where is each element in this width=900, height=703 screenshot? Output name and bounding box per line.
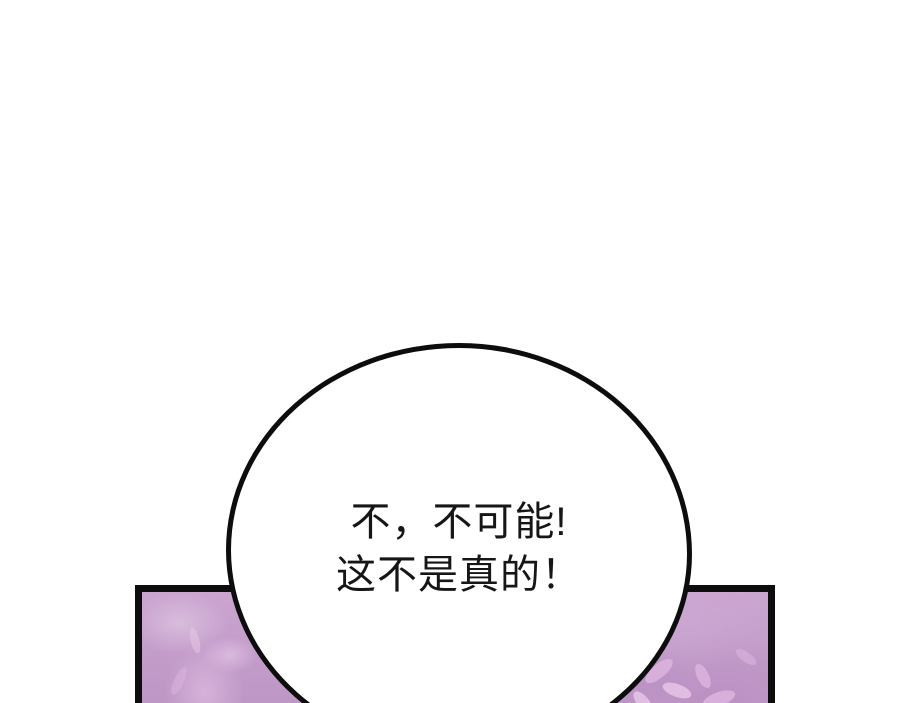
dialogue-line-1: 不，不可能! — [228, 496, 690, 549]
flower-petal-decoration — [188, 627, 201, 654]
flower-petal-decoration — [693, 662, 713, 691]
flower-petal-decoration — [631, 688, 656, 703]
flower-petal-decoration — [661, 678, 694, 702]
flower-petal-decoration — [701, 688, 737, 703]
flower-petal-decoration — [167, 666, 191, 697]
flower-petal-decoration — [734, 645, 759, 668]
dialogue-text: 不，不可能! 这不是真的！ — [228, 496, 690, 602]
dialogue-line-2: 这不是真的！ — [228, 549, 690, 602]
comic-page: 不，不可能! 这不是真的！ — [0, 0, 900, 703]
